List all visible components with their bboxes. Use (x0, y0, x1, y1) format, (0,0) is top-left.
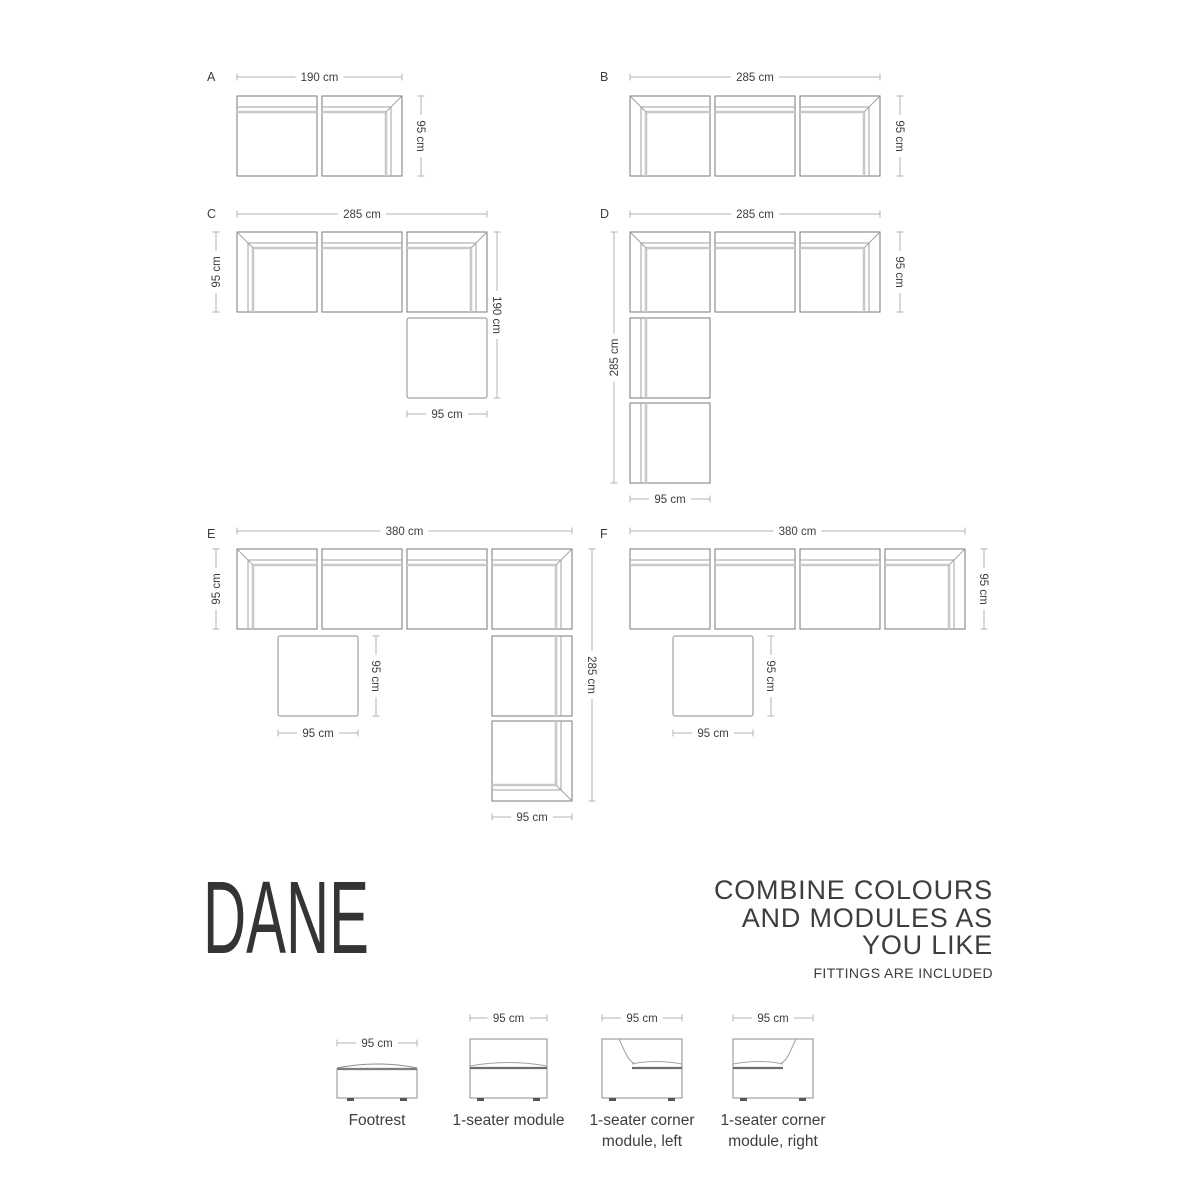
seater-up-module-plan (407, 549, 487, 629)
footrest-module-plan (673, 636, 753, 716)
dimension-label: 95 cm (893, 120, 905, 151)
configuration-label-E: E (207, 527, 215, 541)
dimension-label: 95 cm (211, 256, 223, 287)
dimension-label: 95 cm (757, 1013, 788, 1025)
footrest-module-plan (278, 636, 358, 716)
module-foot (799, 1098, 806, 1101)
dimension-label: 95 cm (893, 256, 905, 287)
configuration-label-F: F (600, 527, 608, 541)
legend-label: 1-seater corner (589, 1112, 694, 1129)
dimension-label: 285 cm (736, 209, 774, 221)
footrest-module-plan (407, 318, 487, 398)
legend-label: 1-seater corner (720, 1112, 825, 1129)
product-title: DANE (203, 866, 369, 969)
dimension-label: 190 cm (490, 296, 502, 334)
configuration-D: D285 cm95 cm285 cm95 cm (600, 207, 905, 506)
configuration-C: C285 cm95 cm190 cm95 cm (207, 207, 502, 421)
configuration-E: E380 cm95 cm95 cm95 cm285 cm95 cm (207, 526, 597, 824)
configuration-B: B285 cm95 cm (600, 70, 905, 176)
dimension-label: 95 cm (302, 728, 333, 740)
configuration-A: A190 cm95 cm (207, 70, 426, 176)
dimension-label: 285 cm (585, 656, 597, 694)
module-foot (668, 1098, 675, 1101)
tagline-line-1: COMBINE COLOURS (714, 877, 993, 905)
dane-sofa-spec-sheet: A190 cm95 cmB285 cm95 cmC285 cm95 cm190 … (0, 0, 1200, 1200)
fittings-note: FITTINGS ARE INCLUDED (714, 966, 993, 981)
seater-up-module-plan (715, 232, 795, 312)
seater-up-module-plan (715, 96, 795, 176)
seater-right-module-plan (492, 636, 572, 716)
module-foot (400, 1098, 407, 1101)
module-foot (609, 1098, 616, 1101)
seater-up-module-plan (322, 232, 402, 312)
dimension-label: 285 cm (609, 339, 621, 377)
module-foot (740, 1098, 747, 1101)
dimension-label: 95 cm (626, 1013, 657, 1025)
dimension-label: 95 cm (516, 812, 547, 824)
legend-item-1-seater-corner-module-left: 95 cm1-seater cornermodule, left (589, 1013, 694, 1150)
module-foot (347, 1098, 354, 1101)
legend-item-footrest: 95 cmFootrest (337, 1038, 417, 1129)
configuration-label-D: D (600, 207, 609, 221)
legend-label: module, left (602, 1133, 683, 1150)
tagline-line-2: AND MODULES AS (714, 905, 993, 933)
dimension-label: 95 cm (361, 1038, 392, 1050)
dimension-label: 380 cm (386, 526, 424, 538)
dimension-label: 95 cm (764, 660, 776, 691)
seater-up-module-plan (715, 549, 795, 629)
legend-label: 1-seater module (452, 1112, 564, 1129)
dimension-label: 190 cm (301, 72, 339, 84)
module-configurations-diagram: A190 cm95 cmB285 cm95 cmC285 cm95 cm190 … (0, 0, 1200, 1200)
seater-left-module-plan (630, 318, 710, 398)
dimension-label: 95 cm (493, 1013, 524, 1025)
legend-item-1-seater-module: 95 cm1-seater module (452, 1013, 564, 1129)
configuration-label-A: A (207, 70, 216, 84)
tagline-line-3: YOU LIKE (714, 932, 993, 960)
legend-label: module, right (728, 1133, 818, 1150)
module-foot (533, 1098, 540, 1101)
dimension-label: 95 cm (414, 120, 426, 151)
seater-left-module-plan (630, 403, 710, 483)
legend-label: Footrest (349, 1112, 407, 1129)
configuration-label-C: C (207, 207, 216, 221)
dimension-label: 95 cm (211, 573, 223, 604)
seater-up-module-plan (237, 96, 317, 176)
configuration-F: F380 cm95 cm95 cm95 cm (600, 526, 989, 740)
dimension-label: 95 cm (654, 494, 685, 506)
dimension-label: 285 cm (736, 72, 774, 84)
dimension-label: 380 cm (779, 526, 817, 538)
dimension-label: 95 cm (431, 409, 462, 421)
configuration-label-B: B (600, 70, 608, 84)
dimension-label: 285 cm (343, 209, 381, 221)
dimension-label: 95 cm (697, 728, 728, 740)
legend-item-1-seater-corner-module-right: 95 cm1-seater cornermodule, right (720, 1013, 825, 1150)
dimension-label: 95 cm (369, 660, 381, 691)
tagline: COMBINE COLOURS AND MODULES AS YOU LIKE … (714, 877, 993, 981)
dimension-label: 95 cm (977, 573, 989, 604)
seater-up-module-plan (630, 549, 710, 629)
seater-up-module-plan (800, 549, 880, 629)
module-foot (477, 1098, 484, 1101)
seater-up-module-plan (322, 549, 402, 629)
